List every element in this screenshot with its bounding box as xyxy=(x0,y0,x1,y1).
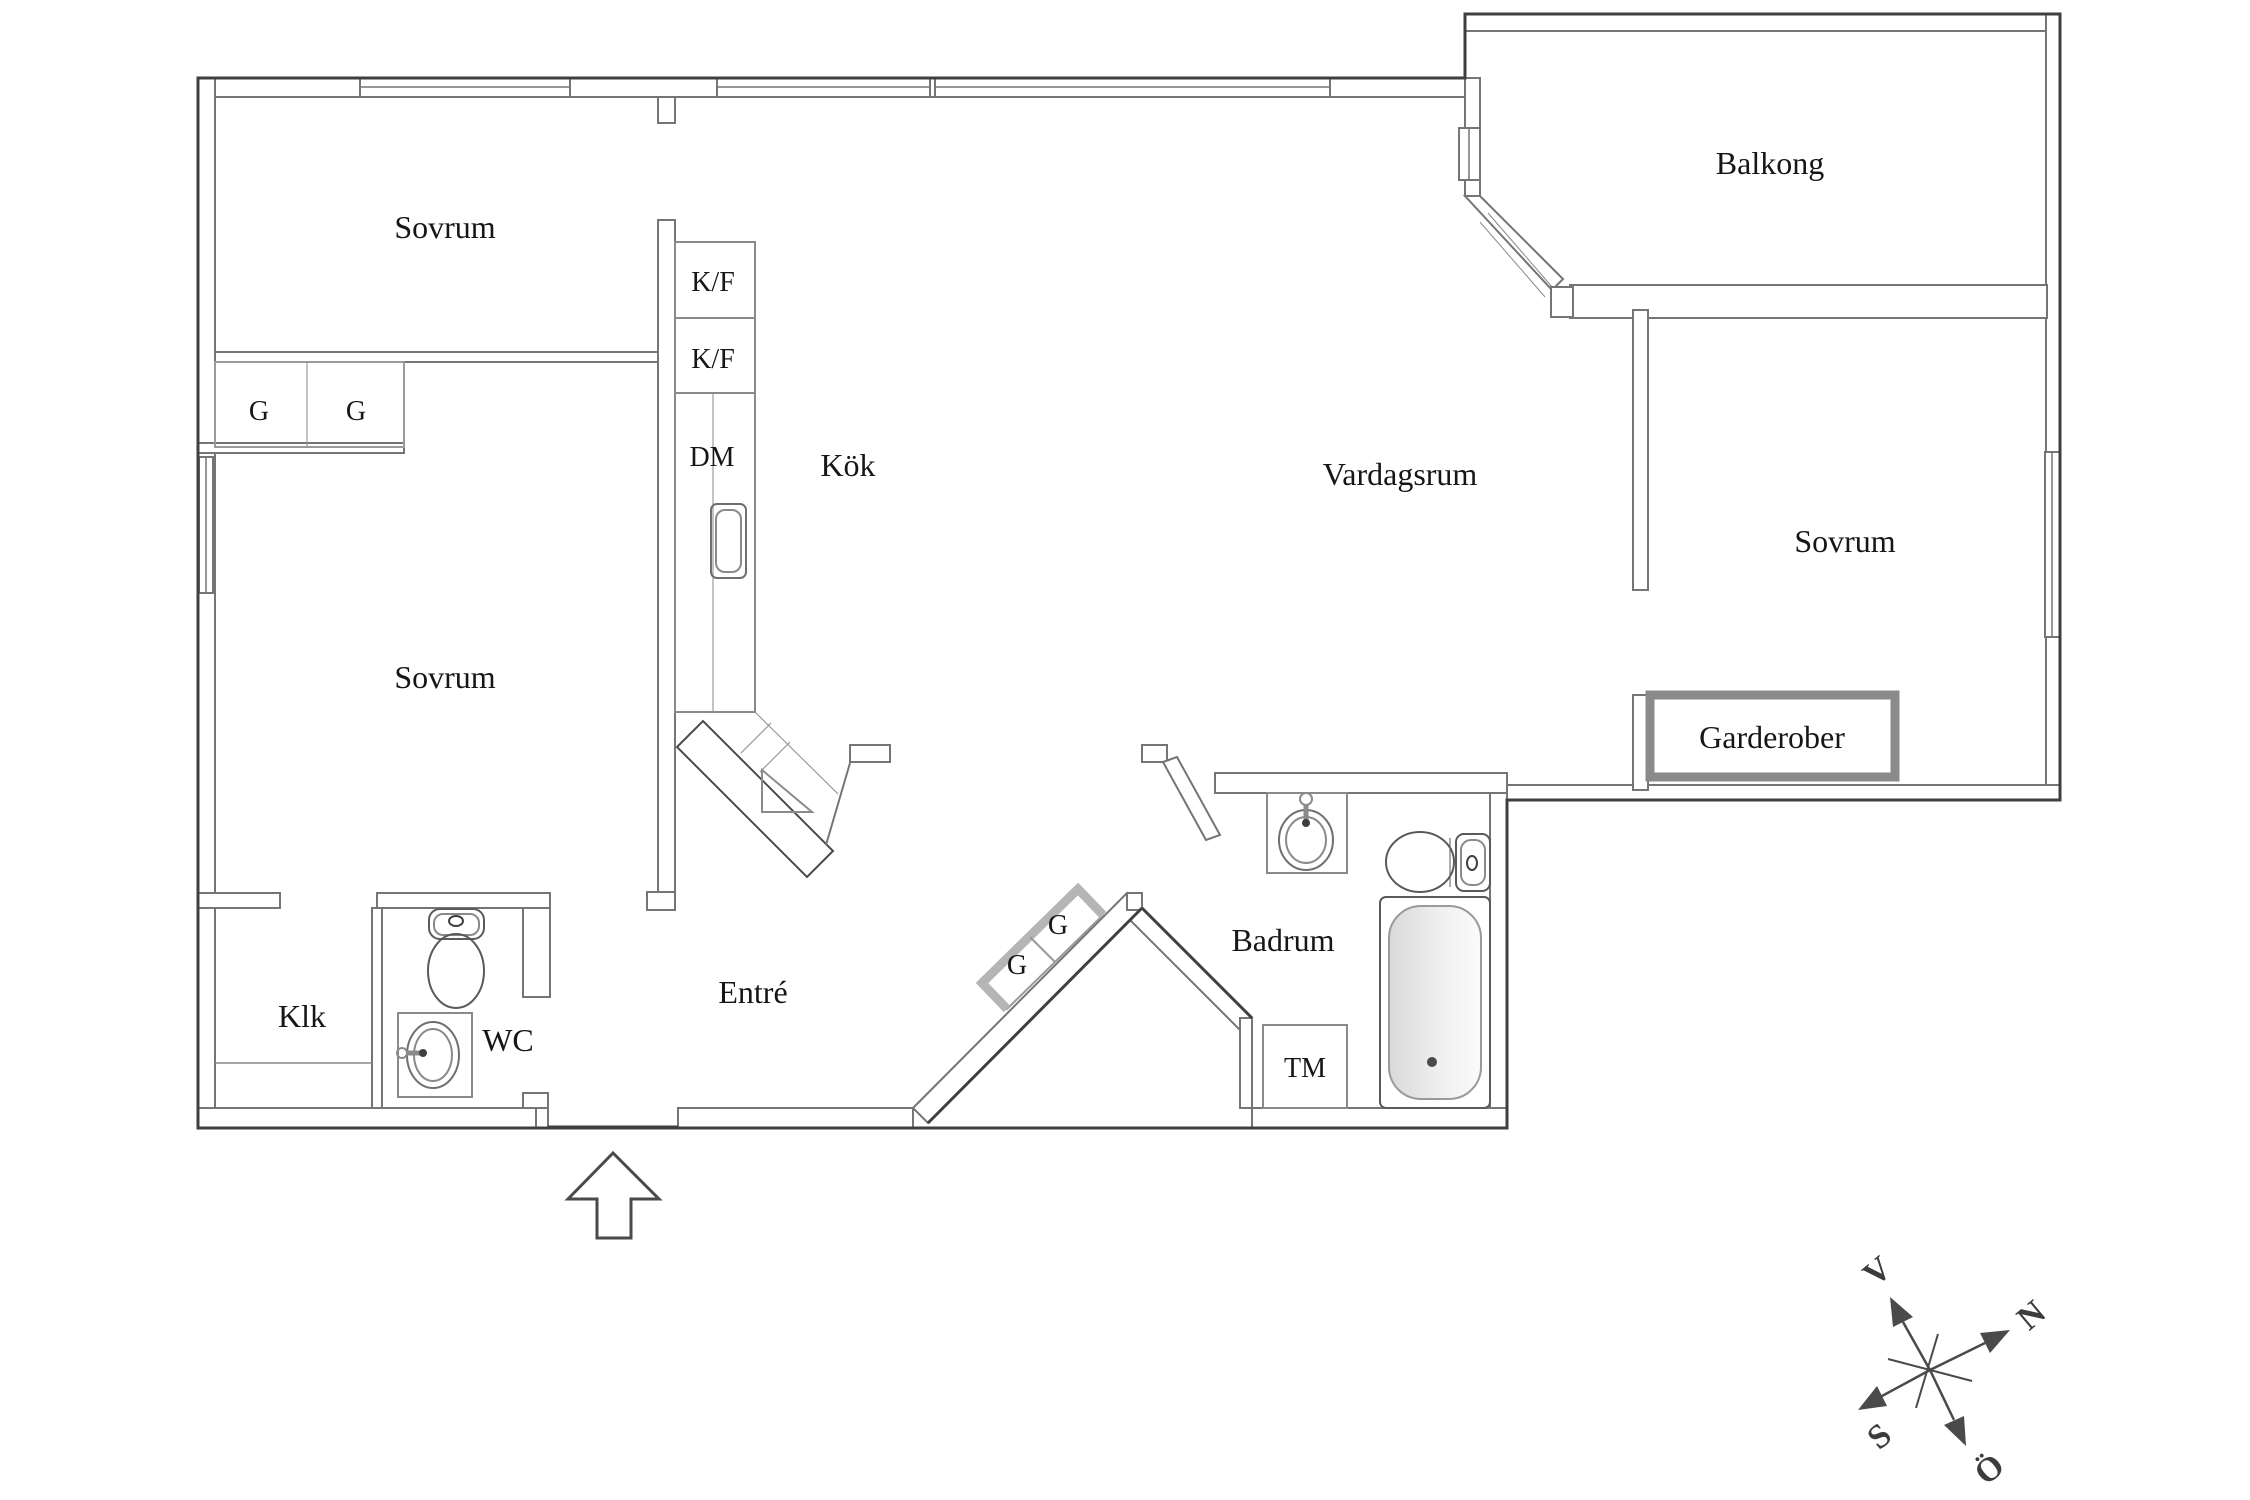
counter-tick-2 xyxy=(760,742,790,772)
label-kf-upper: K/F xyxy=(691,267,735,298)
wall-bottom-3 xyxy=(1252,1108,1507,1128)
balcony-door-threshold xyxy=(1551,287,1573,317)
compass-arrowhead-o xyxy=(1944,1416,1966,1446)
label-klk: Klk xyxy=(278,998,326,1034)
wall-hook-connector xyxy=(826,763,850,845)
label-compass-n: N xyxy=(2010,1293,2053,1337)
window-sovrumright xyxy=(2045,452,2060,637)
label-kok: Kök xyxy=(820,447,875,483)
jamb-badrum-door xyxy=(1142,745,1167,762)
counter-diagonal-edge xyxy=(755,712,838,794)
window-top-1 xyxy=(360,78,570,97)
label-sovrum-lower: Sovrum xyxy=(394,659,495,695)
wc-faucet-dot xyxy=(419,1049,427,1057)
label-badrum: Badrum xyxy=(1231,922,1334,958)
wall-badrum-west xyxy=(1240,1018,1252,1108)
compass-ray-n xyxy=(1930,1343,1985,1370)
wall-wc-notch-2 xyxy=(536,1108,548,1128)
label-sovrum-top: Sovrum xyxy=(394,209,495,245)
badrum-toilet-button xyxy=(1467,856,1477,870)
label-sovrum-right: Sovrum xyxy=(1794,523,1895,559)
label-g-hall-lower: G xyxy=(1007,950,1027,981)
wall-kok-foot xyxy=(647,892,675,910)
floor-plan: Sovrum Kök Vardagsrum Balkong Sovrum Sov… xyxy=(0,0,2250,1500)
wall-badrum-top xyxy=(1215,773,1507,793)
compass-ray-o xyxy=(1930,1370,1954,1420)
counter-tick-1 xyxy=(741,723,771,753)
badrum-faucet-dot xyxy=(1302,819,1310,827)
label-g-closet-right: G xyxy=(346,396,366,427)
wall-left xyxy=(198,78,215,1128)
jamb-hall-opening xyxy=(850,745,890,762)
outer-wall-outline xyxy=(198,14,2060,1128)
compass-arrowhead-n xyxy=(1980,1330,2010,1353)
wc-toilet-bowl xyxy=(428,934,484,1008)
badrum-toilet-bowl xyxy=(1386,832,1454,892)
badrum-toilet-tank-inner xyxy=(1461,840,1485,885)
badrum-door-leaf xyxy=(1163,757,1220,840)
jamb-peak xyxy=(1127,893,1142,910)
label-g-hall-upper: G xyxy=(1048,910,1068,941)
wall-hall-diagonal-west xyxy=(913,893,1142,1123)
wall-klk-top xyxy=(198,893,280,908)
wall-sovrumright-west-upper xyxy=(1633,310,1648,590)
label-g-closet-left: G xyxy=(249,396,269,427)
label-compass-v: V xyxy=(1856,1249,1899,1293)
wall-bottom-right xyxy=(1507,785,2060,800)
label-dm: DM xyxy=(689,442,734,473)
wall-kok-stub xyxy=(658,97,675,123)
compass-arrowhead-s xyxy=(1858,1386,1887,1410)
wall-balcony-top xyxy=(1465,14,2060,31)
interior-walls xyxy=(198,14,2060,1128)
wc-toilet-button xyxy=(449,916,463,926)
window-left xyxy=(199,457,213,593)
label-vardagsrum: Vardagsrum xyxy=(1323,456,1478,492)
label-entre: Entré xyxy=(718,974,787,1010)
labels: Sovrum Kök Vardagsrum Balkong Sovrum Sov… xyxy=(249,145,2053,1492)
wall-kok-diagonal xyxy=(677,721,833,877)
wall-badrum-east xyxy=(1490,793,1507,1108)
wall-bottom-2 xyxy=(678,1108,913,1128)
window-balcony-west xyxy=(1459,128,1480,180)
label-compass-s: S xyxy=(1861,1416,1899,1457)
wall-kok-west xyxy=(658,220,675,892)
entrance-arrow-icon xyxy=(568,1153,659,1238)
wall-right xyxy=(2046,14,2060,800)
badrum-faucet-knob xyxy=(1300,793,1312,805)
wall-wc-top xyxy=(377,893,550,908)
bathtub-inner xyxy=(1389,906,1481,1099)
kitchen-sink-inner xyxy=(716,510,741,572)
label-garderober: Garderober xyxy=(1699,719,1845,755)
wc-toilet-tank-inner xyxy=(434,914,479,935)
window-top-3 xyxy=(935,78,1330,97)
label-wc: WC xyxy=(482,1022,534,1058)
label-kf-lower: K/F xyxy=(691,344,735,375)
wall-klk-wc-divider xyxy=(372,908,382,1108)
balcony-door-leaf-1 xyxy=(1488,213,1553,288)
label-balkong: Balkong xyxy=(1716,145,1824,181)
label-compass-o: Ö xyxy=(1968,1447,2012,1492)
compass-arrowhead-v xyxy=(1890,1297,1913,1327)
wall-wc-notch-1 xyxy=(523,1093,548,1108)
wall-wc-east-stub xyxy=(523,908,550,997)
window-top-2 xyxy=(717,78,930,97)
wall-sovrumtop-bottom xyxy=(215,352,658,362)
label-tm: TM xyxy=(1284,1053,1326,1084)
wall-bottom-1 xyxy=(198,1108,548,1128)
compass-ray-v xyxy=(1903,1322,1930,1370)
bathtub-drain xyxy=(1427,1057,1437,1067)
closet-gg-box xyxy=(215,362,404,447)
